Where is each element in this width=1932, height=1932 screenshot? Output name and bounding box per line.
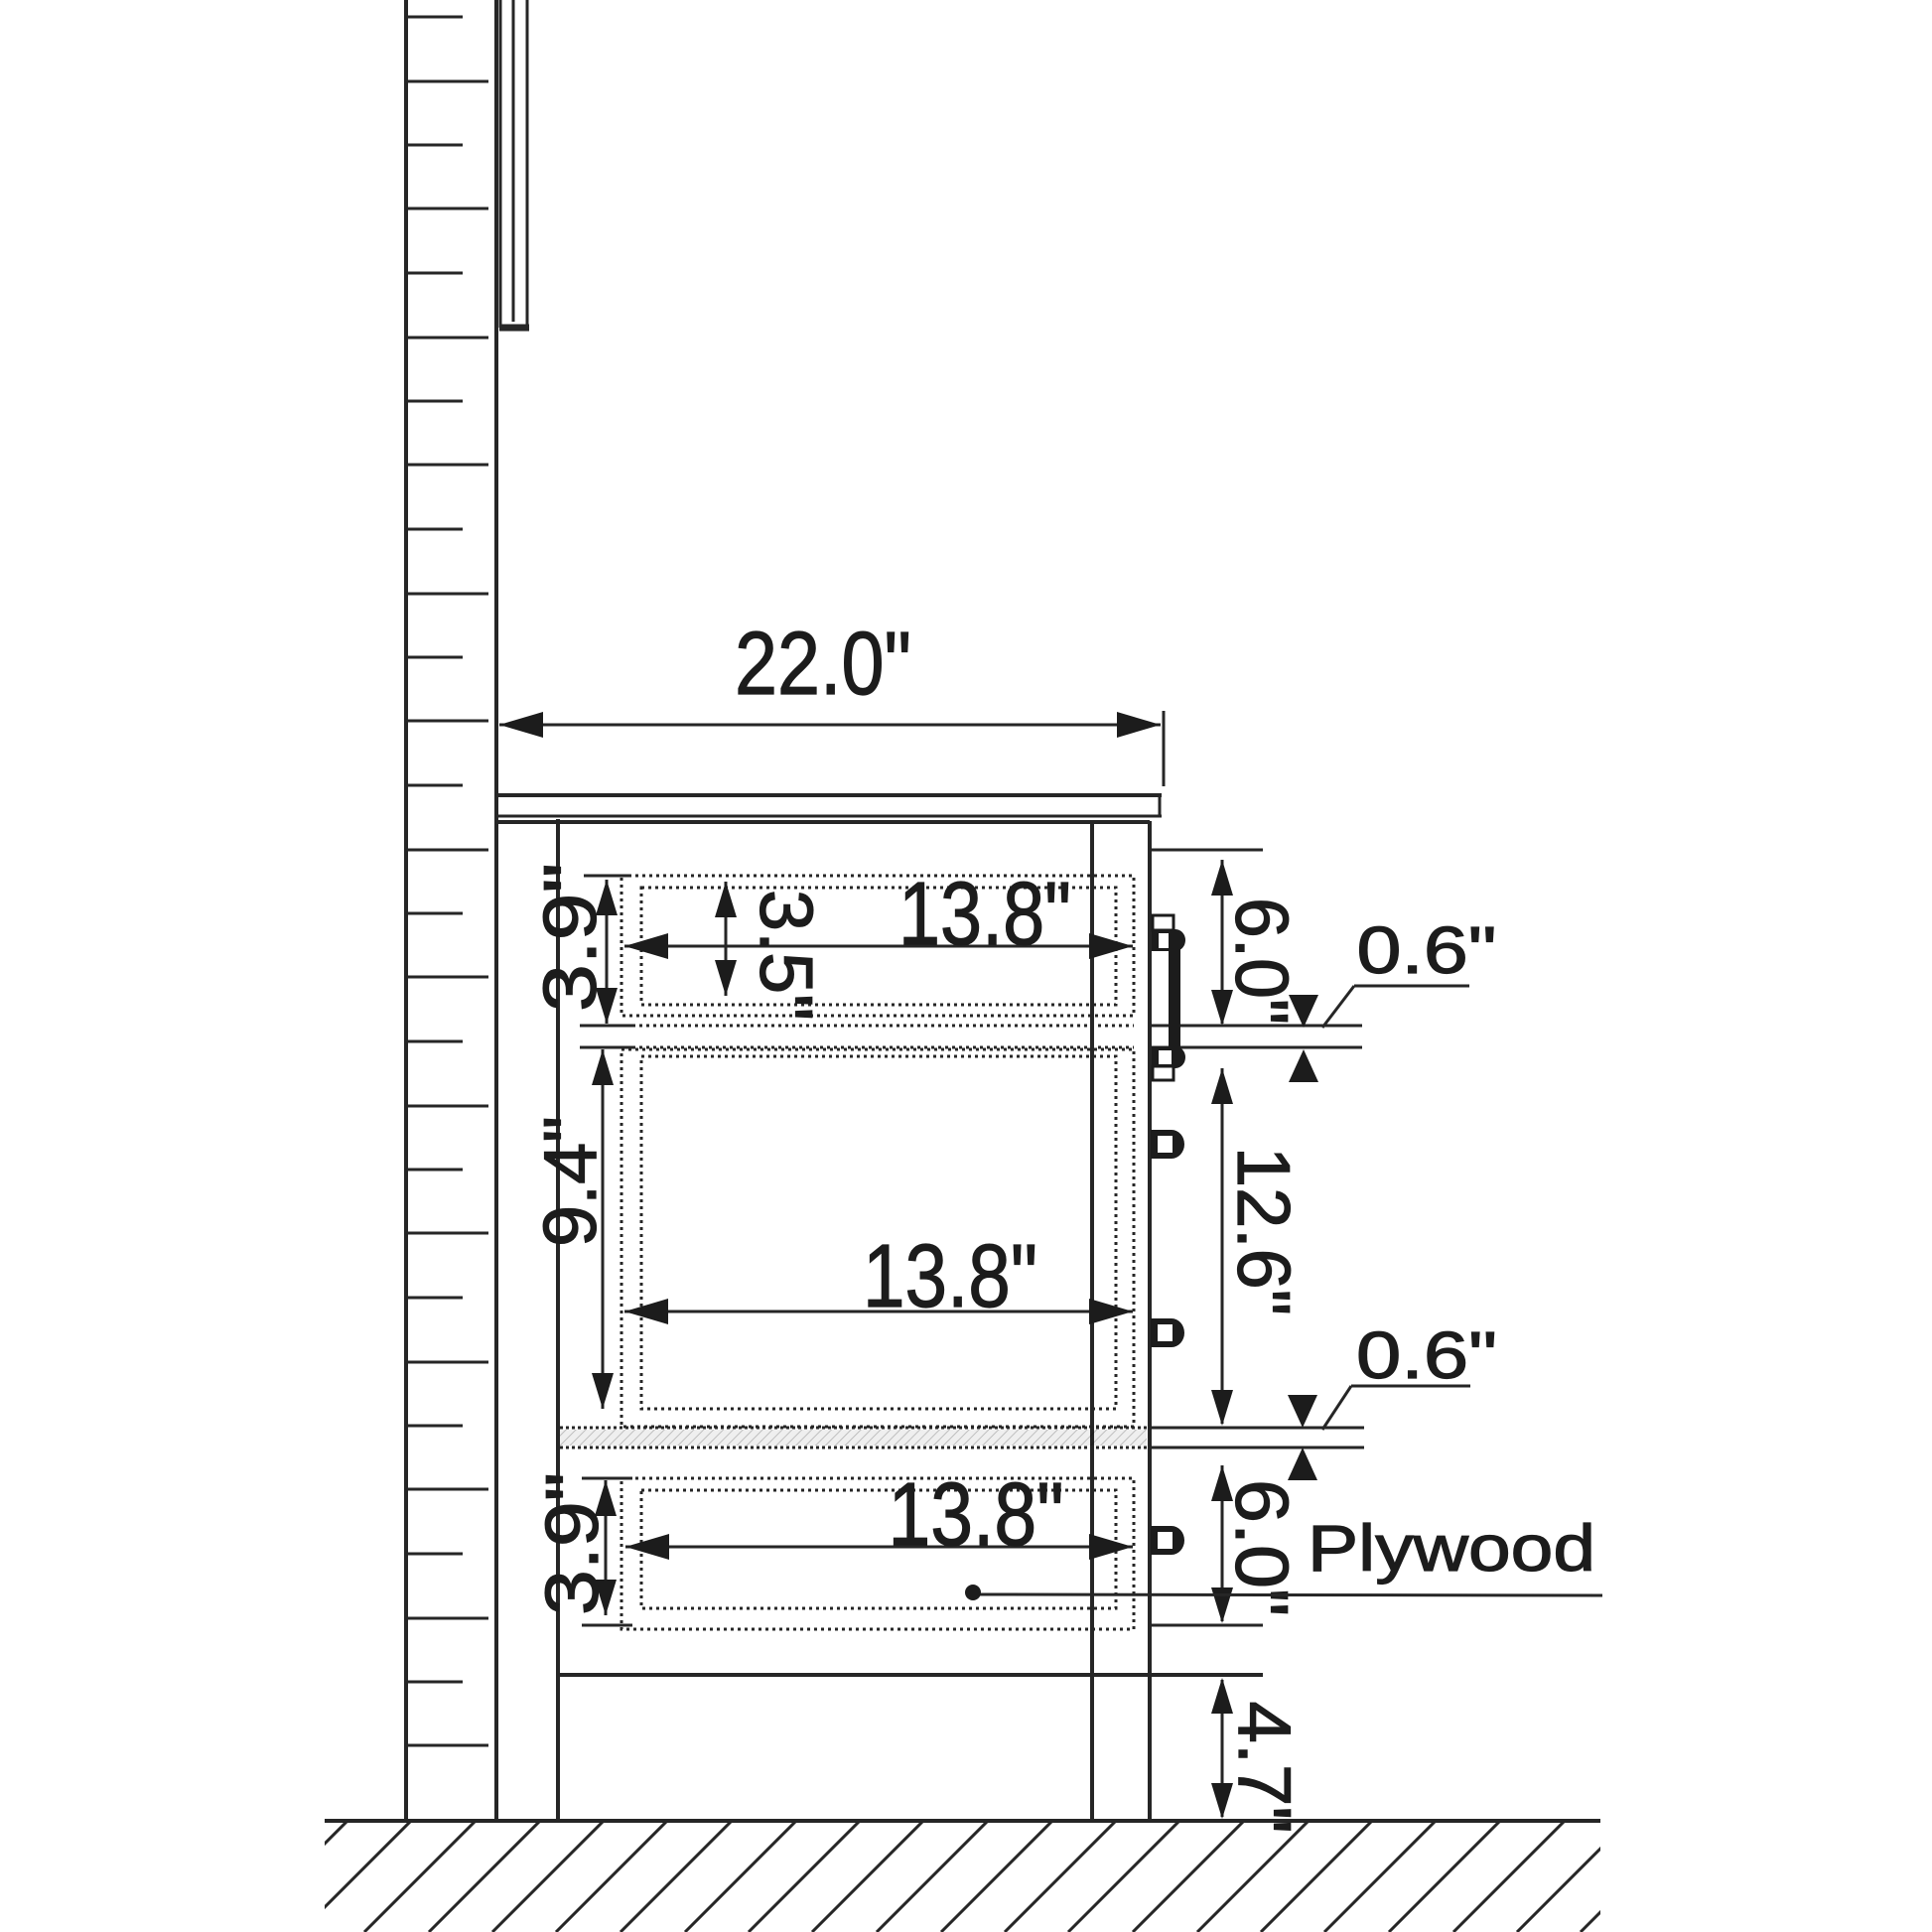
svg-text:3.9": 3.9" (528, 863, 612, 1012)
svg-text:Plywood: Plywood (1308, 1511, 1595, 1585)
svg-text:0.6": 0.6" (1357, 913, 1497, 988)
svg-text:12.6": 12.6" (1222, 1147, 1306, 1315)
svg-text:13.8": 13.8" (863, 1227, 1037, 1326)
svg-text:3.9": 3.9" (530, 1472, 614, 1615)
svg-text:13.8": 13.8" (898, 865, 1071, 964)
svg-text:4.7": 4.7" (1223, 1702, 1307, 1834)
svg-text:3.5": 3.5" (745, 890, 828, 1021)
svg-text:6.0": 6.0" (1220, 897, 1304, 1025)
svg-text:9.4": 9.4" (528, 1116, 612, 1247)
svg-text:22.0": 22.0" (735, 615, 911, 714)
svg-text:13.8": 13.8" (889, 1465, 1064, 1565)
svg-text:0.6": 0.6" (1356, 1318, 1497, 1393)
